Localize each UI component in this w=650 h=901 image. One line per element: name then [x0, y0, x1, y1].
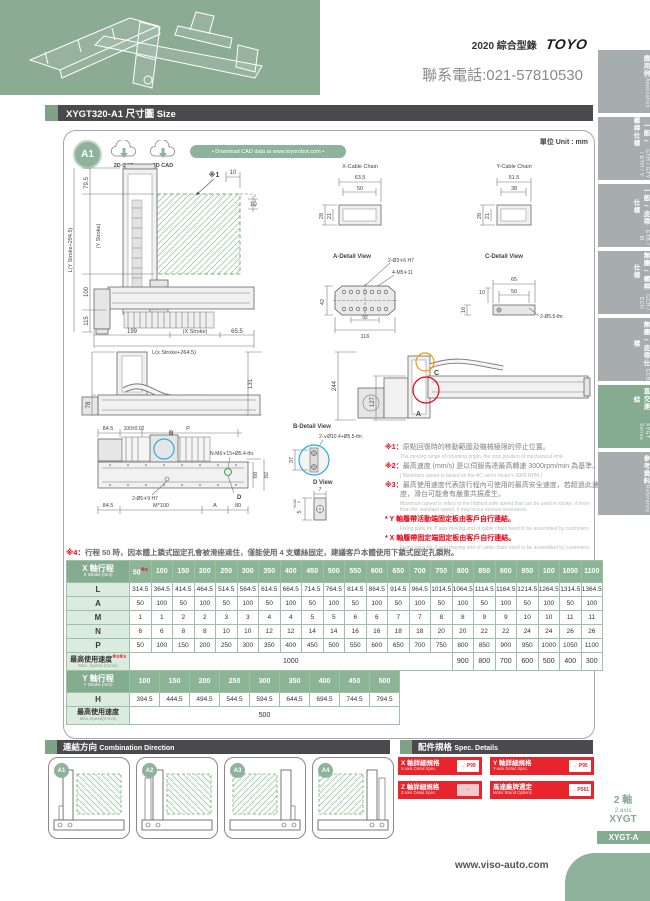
speed-value-cell: 1000: [130, 653, 453, 671]
dim-label: M*100: [153, 503, 169, 509]
dim-value-cell: 100: [237, 597, 259, 611]
stroke-header-cell: 50※4: [130, 561, 152, 583]
dim-label: 42: [320, 299, 326, 305]
dim-value-cell: 1264.5: [538, 583, 560, 597]
dim-value-cell: 6: [366, 611, 388, 625]
dim-label: 244: [332, 380, 338, 391]
stroke-header-cell: 900: [495, 561, 517, 583]
dim-value-cell: 394.5: [130, 693, 160, 707]
marker-a: A: [416, 411, 421, 418]
combo-badge: A4: [318, 763, 333, 778]
stroke-header-cell: 100: [538, 561, 560, 583]
spec-button-motor-brand[interactable]: 馬達廠牌選定Motor Brand Options. → P561: [490, 781, 594, 799]
stroke-header-cell: 400: [310, 671, 340, 693]
dim-value-cell: 3: [237, 611, 259, 625]
unit-label: 單位 Unit : mm: [460, 137, 588, 147]
dim-label: 63.5: [355, 175, 366, 181]
bar-green-square: [45, 740, 57, 754]
tolerance-upper: +0.012: [293, 499, 297, 509]
dim-label: 52: [362, 315, 368, 321]
dim-value-cell: 644.5: [280, 693, 310, 707]
row-label: A: [67, 597, 130, 611]
callout-label: 2-Ø5.5-thr.: [540, 314, 564, 320]
dim-label: P: [186, 426, 190, 432]
dim-value-cell: 494.5: [190, 693, 220, 707]
note-1: ※1：原點回復時的移動範圍及機械極限的停止位置。: [385, 444, 600, 453]
dim-value-cell: 10: [538, 611, 560, 625]
row-label: N: [67, 625, 130, 639]
combo-badge: A1: [54, 763, 69, 778]
dim-value-cell: 12: [259, 625, 281, 639]
spec-button-z-axis[interactable]: Z 軸詳細規格Z-axis Detail Spec. -: [398, 781, 482, 799]
sidebar-tab-gth-gty-eth-y[interactable]: 一般 / 螺桿仕樣GTH / GTY / ETH / Y: [598, 117, 650, 180]
dim-value-cell: 100: [581, 597, 603, 611]
dim-value-cell: 9: [474, 611, 496, 625]
view-title: C-Detail View: [485, 254, 523, 260]
dim-value-cell: 100: [495, 597, 517, 611]
hero-product-image: [0, 0, 320, 95]
sidebar-tab-etb-m[interactable]: 一般 / 皮帶仕樣ETB / M: [598, 184, 650, 247]
speed-value-cell: 700: [495, 653, 517, 671]
dim-value-cell: 20: [452, 625, 474, 639]
speed-label: 最高使用速度※2※3Max. Speed (mm/s): [67, 653, 130, 671]
dim-value-cell: 100: [280, 597, 302, 611]
stroke-header-cell: 350: [280, 671, 310, 693]
spec-title-en: Spec. Details: [454, 745, 498, 752]
dim-label: 28: [477, 213, 483, 219]
dim-label: 131: [248, 378, 254, 389]
dim-value-cell: 9: [495, 611, 517, 625]
series-label-block: 2 軸 2 axis XYGT: [596, 795, 650, 825]
page-ref: → P99: [457, 760, 479, 772]
note-3: ※3：最高使用速度代表該行程內可使用的最高安全速度，若超過此速度，滑台可能會有嚴…: [385, 482, 600, 500]
dim-label: 80: [235, 503, 241, 509]
bar-green-square: [400, 740, 412, 754]
dim-value-cell: 100: [151, 639, 173, 653]
a-detail-view-drawing: A-Detail View 2-Ø3∓6 H7 4-M5∓11 42 52 11…: [310, 248, 445, 348]
stroke-header-cell: 500: [323, 561, 345, 583]
website-url: www.viso-auto.com: [455, 860, 575, 871]
dim-value-cell: 1064.5: [452, 583, 474, 597]
dim-value-cell: 594.5: [250, 693, 280, 707]
dim-value-cell: 20: [431, 625, 453, 639]
combination-option-a4: A4: [312, 757, 394, 839]
title-green-square: [45, 105, 58, 121]
dim-label: 65: [511, 277, 517, 283]
dim-value-cell: 2: [173, 611, 195, 625]
view-title: B-Detail View: [293, 424, 331, 430]
dim-label: 84.5: [103, 426, 114, 432]
stroke-header-cell: 200: [194, 561, 216, 583]
dim-value-cell: 764.5: [323, 583, 345, 597]
speed-value-cell: 900: [452, 653, 474, 671]
view-title: A-Detail View: [333, 254, 371, 260]
dim-value-cell: 14: [302, 625, 324, 639]
marker-d: D: [237, 495, 242, 501]
stroke-header-cell: 300: [237, 561, 259, 583]
dim-value-cell: 10: [216, 625, 238, 639]
dim-value-cell: 314.5: [130, 583, 152, 597]
view-title: Y-Cable Chain: [496, 164, 531, 170]
dim-value-cell: 1: [130, 611, 152, 625]
page-ref: -: [457, 784, 479, 796]
row-label: M: [67, 611, 130, 625]
corner-decoration: [565, 853, 650, 901]
dim-value-cell: 8: [173, 625, 195, 639]
stroke-table-label: X 軸行程X Stroke (mm): [67, 561, 130, 583]
dim-value-cell: 16: [366, 625, 388, 639]
dim-value-cell: 1314.5: [560, 583, 582, 597]
dim-label: 10: [230, 170, 237, 176]
spec-title-zh: 配件規格: [418, 742, 452, 752]
dim-value-cell: 1214.5: [517, 583, 539, 597]
dim-label: 127: [370, 396, 376, 407]
speed-value-cell: 500: [130, 707, 400, 725]
dim-label: 10: [479, 290, 485, 296]
speed-value-cell: 500: [538, 653, 560, 671]
page-title: XYGT320-A1 尺寸圖 Size: [58, 106, 176, 120]
stroke-header-cell: 800: [452, 561, 474, 583]
dim-value-cell: 50: [431, 597, 453, 611]
dim-value-cell: 24: [538, 625, 560, 639]
callout-label: 2-Ø5∓9 H7: [132, 496, 158, 502]
tolerance-lower: 0: [297, 501, 301, 503]
sidebar-tab-ecb[interactable]: 無塵 / 皮帶仕樣ECB: [598, 318, 650, 381]
combo-badge: A3: [230, 763, 245, 778]
row-label: H: [67, 693, 130, 707]
dim-value-cell: 8: [194, 625, 216, 639]
side-view-drawing: 78 131: [62, 350, 307, 427]
speed-value-cell: 300: [581, 653, 603, 671]
dim-value-cell: 800: [452, 639, 474, 653]
stroke-header-cell: 250: [216, 561, 238, 583]
y-cable-chain-drawing: Y-Cable Chain 51.5 38 28 21: [468, 160, 546, 240]
dim-value-cell: 50: [259, 597, 281, 611]
dim-value-cell: 22: [495, 625, 517, 639]
combination-option-a1: A1: [48, 757, 130, 839]
dim-label: 38: [511, 186, 517, 192]
stroke-header-cell: 950: [517, 561, 539, 583]
stroke-header-cell: 700: [409, 561, 431, 583]
dim-label: L(Y Stroke+294.5): [68, 227, 74, 272]
speed-value-cell: 800: [474, 653, 496, 671]
dim-value-cell: 444.5: [160, 693, 190, 707]
dim-value-cell: 914.5: [388, 583, 410, 597]
dim-value-cell: 50: [302, 597, 324, 611]
dim-value-cell: 814.5: [345, 583, 367, 597]
dim-value-cell: 22: [474, 625, 496, 639]
row-label: P: [67, 639, 130, 653]
dim-value-cell: 50: [474, 597, 496, 611]
stroke-header-cell: 150: [160, 671, 190, 693]
dim-label: 7: [318, 487, 321, 493]
dim-value-cell: 500: [323, 639, 345, 653]
dim-value-cell: 50: [130, 639, 152, 653]
dim-value-cell: 600: [366, 639, 388, 653]
dim-value-cell: 4: [280, 611, 302, 625]
dim-value-cell: 10: [237, 625, 259, 639]
dim-label: 79.5: [84, 177, 90, 189]
dim-label: A: [213, 503, 217, 509]
dim-value-cell: 18: [388, 625, 410, 639]
note-y-chain: * Y 軸履帶活動端固定板由客戶自行連結。: [385, 516, 600, 525]
toyo-logo: TOYO: [544, 36, 588, 52]
speed-value-cell: 600: [517, 653, 539, 671]
dim-value-cell: 100: [452, 597, 474, 611]
dim-value-cell: 1364.5: [581, 583, 603, 597]
combination-title-en: Combination Direction: [99, 745, 174, 752]
footnotes: ※1：原點回復時的移動範圍及機械極限的停止位置。 The moving rang…: [385, 444, 600, 554]
dim-value-cell: 400: [280, 639, 302, 653]
note-2: ※2：最高速度 (mm/s) 是以伺服馬達最高轉速 3000rpm/min 為基…: [385, 463, 600, 472]
dim-value-cell: 750: [431, 639, 453, 653]
dim-value-cell: 100: [538, 597, 560, 611]
page-ref: → P95: [569, 760, 591, 772]
x-cable-chain-drawing: X-Cable Chain 63.5 50 28 21: [315, 160, 393, 240]
dim-value-cell: 26: [581, 625, 603, 639]
dim-label: 78: [86, 401, 92, 408]
dim-value-cell: 514.5: [216, 583, 238, 597]
dim-value-cell: 2: [194, 611, 216, 625]
dim-label: 10: [250, 202, 257, 208]
page-ref: → P561: [569, 784, 591, 796]
dim-value-cell: 1050: [560, 639, 582, 653]
dim-value-cell: 564.5: [237, 583, 259, 597]
dim-label: 65.5: [231, 329, 243, 335]
dim-value-cell: 5: [302, 611, 324, 625]
dim-value-cell: 7: [388, 611, 410, 625]
note-3-en: Maximum speed is refers to the highest s…: [400, 501, 600, 514]
dim-value-cell: 464.5: [194, 583, 216, 597]
stroke-header-cell: 1100: [581, 561, 603, 583]
dim-value-cell: 950: [517, 639, 539, 653]
axis-count-en: 2 axis: [596, 807, 650, 814]
dim-value-cell: 26: [560, 625, 582, 639]
combination-option-a2: A2: [136, 757, 218, 839]
callout-label: 4-M5∓11: [392, 270, 413, 276]
spec-button-x-axis[interactable]: X 軸詳細規格X-axis Detail Spec. → P99: [398, 757, 482, 775]
dim-value-cell: 614.5: [259, 583, 281, 597]
catalog-page: 2020 綜合型錄 TOYO 聯系電話:021-57810530 XYGT320…: [0, 0, 650, 901]
dim-value-cell: 7: [409, 611, 431, 625]
dim-value-cell: 50: [388, 597, 410, 611]
dim-value-cell: 50: [517, 597, 539, 611]
dim-value-cell: 714.5: [302, 583, 324, 597]
dim-value-cell: 3: [216, 611, 238, 625]
stroke-header-cell: 550: [345, 561, 367, 583]
dim-label: 115: [84, 316, 90, 326]
dim-label: 5: [297, 510, 303, 513]
dim-value-cell: 450: [302, 639, 324, 653]
dim-value-cell: 11: [581, 611, 603, 625]
dim-label: 21: [327, 213, 333, 219]
spec-button-y-axis[interactable]: Y 軸詳細規格Y-axis Detail Spec. → P95: [490, 757, 594, 775]
stroke-header-cell: 250: [220, 671, 250, 693]
dim-value-cell: 10: [517, 611, 539, 625]
dim-label: 68: [253, 472, 259, 478]
dim-value-cell: 544.5: [220, 693, 250, 707]
stroke-header-cell: 100: [151, 561, 173, 583]
dim-value-cell: 794.5: [370, 693, 400, 707]
dim-value-cell: 964.5: [409, 583, 431, 597]
note-y-chain-en: Fixing plate for Y axis moving end of ca…: [400, 526, 600, 532]
speed-value-cell: 400: [560, 653, 582, 671]
stroke-table-label: Y 軸行程Y Stroke (mm): [67, 671, 130, 693]
note-2-en: [ Maximum speed is based on the AC servo…: [400, 473, 600, 479]
dim-value-cell: 50: [173, 597, 195, 611]
contact-phone: 聯系電話:021-57810530: [340, 64, 583, 85]
dim-value-cell: 1014.5: [431, 583, 453, 597]
dim-label: 51.5: [509, 175, 520, 181]
dim-value-cell: 1000: [538, 639, 560, 653]
dim-value-cell: 100: [194, 597, 216, 611]
dim-value-cell: 50: [560, 597, 582, 611]
stroke-header-cell: 600: [366, 561, 388, 583]
dim-label: 50: [357, 186, 363, 192]
dim-label: 28: [319, 213, 325, 219]
combination-direction-bar: 連結方向 Combination Direction: [45, 740, 390, 754]
dim-value-cell: 1100: [581, 639, 603, 653]
dim-value-cell: 100: [366, 597, 388, 611]
dim-label: 100: [84, 286, 90, 297]
note-1-en: The moving range of returning origin, th…: [400, 454, 600, 460]
sidebar-tab-reference[interactable]: 參考資料Reference: [598, 452, 650, 515]
stroke-header-cell: 350: [259, 561, 281, 583]
dim-label: 37: [289, 457, 295, 463]
view-title: X-Cable Chain: [342, 164, 378, 170]
ref-mark-1: ※1: [209, 170, 220, 179]
sidebar-tab-gch-ech[interactable]: 無塵 / 螺桿仕樣GCH / ECH: [598, 251, 650, 314]
stroke-header-cell: 450: [302, 561, 324, 583]
cad-download-banner[interactable]: • Download CAD data at www.toyorobot.com…: [190, 145, 346, 158]
dim-value-cell: 6: [151, 625, 173, 639]
dim-value-cell: 5: [323, 611, 345, 625]
dim-value-cell: 24: [517, 625, 539, 639]
y-stroke-table: Y 軸行程Y Stroke (mm)1001502002503003504004…: [66, 670, 400, 725]
dim-value-cell: 1114.5: [474, 583, 496, 597]
catalog-year-label: 2020 綜合型錄: [472, 41, 537, 52]
dim-value-cell: 16: [345, 625, 367, 639]
sidebar-tab-application[interactable]: 應用例Application: [598, 50, 650, 113]
dim-value-cell: 8: [452, 611, 474, 625]
model-page-tab[interactable]: XYGT-A: [597, 831, 650, 844]
dim-value-cell: 350: [259, 639, 281, 653]
section-title-bar: XYGT320-A1 尺寸圖 Size: [45, 105, 593, 121]
callout-label: 2-∨Ø10.4+Ø5.5-thr.: [319, 434, 363, 440]
dim-value-cell: 650: [388, 639, 410, 653]
stroke-header-cell: 850: [474, 561, 496, 583]
x-stroke-table: X 軸行程X Stroke (mm)50※4100150200250300350…: [66, 560, 603, 671]
dim-label: 21: [485, 213, 491, 219]
dim-value-cell: 550: [345, 639, 367, 653]
combination-title-zh: 連結方向: [63, 742, 97, 752]
dim-value-cell: 700: [409, 639, 431, 653]
dim-label: 100±0.02: [124, 426, 145, 432]
callout-label: N-M6∓15+Ø5.4-thr.: [210, 451, 254, 457]
dim-value-cell: 6: [345, 611, 367, 625]
dim-label: (Y Stroke): [96, 224, 102, 249]
dim-value-cell: 1164.5: [495, 583, 517, 597]
marker-b: B: [169, 431, 174, 437]
dim-value-cell: 8: [431, 611, 453, 625]
catalog-edition: 2020 綜合型錄 TOYO: [380, 36, 587, 52]
stroke-header-cell: 200: [190, 671, 220, 693]
dim-value-cell: 50: [130, 597, 152, 611]
dim-label: 199: [127, 329, 138, 335]
stroke-header-cell: 1050: [560, 561, 582, 583]
dim-label: (X Stroke): [183, 329, 208, 335]
dim-value-cell: 364.5: [151, 583, 173, 597]
callout-label: 2-Ø3∓6 H7: [388, 258, 414, 264]
dim-value-cell: 850: [474, 639, 496, 653]
axis-count-zh: 2 軸: [596, 795, 650, 807]
dim-value-cell: 250: [216, 639, 238, 653]
sidebar-tab-xygt-series[interactable]: 直交連結XYGT Series: [598, 385, 650, 448]
speed-label: 最高使用速度Max.Speed(mm/s): [67, 707, 130, 725]
dim-label: 50: [511, 289, 517, 295]
view-title: D View: [313, 480, 333, 486]
dim-value-cell: 864.5: [366, 583, 388, 597]
stroke-header-cell: 750: [431, 561, 453, 583]
dim-value-cell: 1: [151, 611, 173, 625]
marker-c: C: [434, 370, 439, 377]
row-label: L: [67, 583, 130, 597]
spec-details-bar: 配件規格 Spec. Details: [400, 740, 593, 754]
spec-buttons: X 軸詳細規格X-axis Detail Spec. → P99 Y 軸詳細規格…: [398, 757, 594, 799]
dim-value-cell: 414.5: [173, 583, 195, 597]
d-view-drawing: D View 7 5 +0.012 0: [283, 474, 393, 535]
dim-label: 84.5: [103, 503, 114, 509]
dim-value-cell: 300: [237, 639, 259, 653]
stroke-header-cell: 300: [250, 671, 280, 693]
c-detail-view-drawing: C-Detail View 65 10 50 16 2-Ø5.5-thr.: [455, 248, 595, 333]
dim-value-cell: 14: [323, 625, 345, 639]
stroke-header-cell: 100: [130, 671, 160, 693]
dim-value-cell: 664.5: [280, 583, 302, 597]
stroke-header-cell: 150: [173, 561, 195, 583]
dim-value-cell: 12: [280, 625, 302, 639]
dim-value-cell: 100: [409, 597, 431, 611]
dim-value-cell: 4: [259, 611, 281, 625]
dim-label: 116: [361, 334, 370, 340]
dim-value-cell: 6: [130, 625, 152, 639]
dim-value-cell: 744.5: [340, 693, 370, 707]
dim-value-cell: 100: [151, 597, 173, 611]
stroke-header-cell: 650: [388, 561, 410, 583]
dim-label: 82: [264, 472, 270, 478]
series-name: XYGT: [596, 814, 650, 826]
dim-value-cell: 18: [409, 625, 431, 639]
gantry-line-art: [0, 0, 320, 95]
dim-value-cell: 694.5: [310, 693, 340, 707]
dim-value-cell: 11: [560, 611, 582, 625]
stroke-header-cell: 450: [340, 671, 370, 693]
dim-label: 16: [461, 307, 467, 313]
dim-value-cell: 100: [323, 597, 345, 611]
dim-value-cell: 200: [194, 639, 216, 653]
dim-value-cell: 50: [345, 597, 367, 611]
combination-option-a3: A3: [224, 757, 306, 839]
dim-value-cell: 150: [173, 639, 195, 653]
dim-value-cell: 900: [495, 639, 517, 653]
combo-badge: A2: [142, 763, 157, 778]
stroke-header-cell: 400: [280, 561, 302, 583]
dim-value-cell: 50: [216, 597, 238, 611]
stroke-header-cell: 500: [370, 671, 400, 693]
